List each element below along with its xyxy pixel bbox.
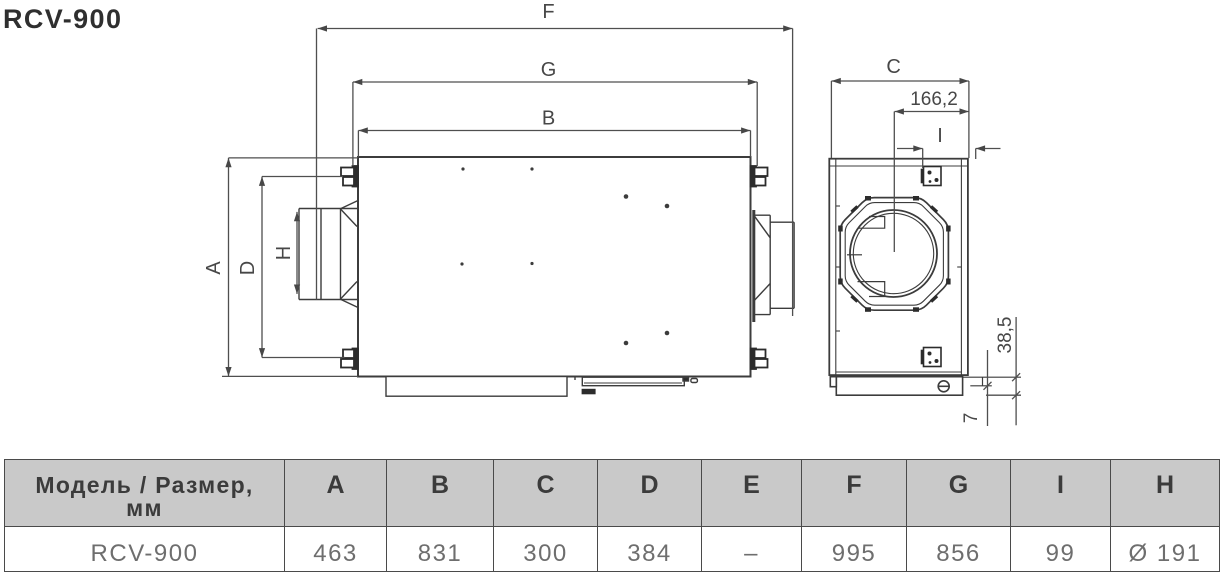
svg-text:A: A: [203, 261, 225, 275]
svg-text:H: H: [273, 246, 295, 260]
svg-text:166,2: 166,2: [910, 89, 958, 110]
svg-text:D: D: [237, 261, 259, 275]
svg-text:38,5: 38,5: [995, 317, 1016, 354]
svg-text:7: 7: [961, 413, 982, 424]
svg-text:I: I: [937, 125, 943, 147]
svg-text:G: G: [541, 59, 557, 81]
svg-text:C: C: [886, 56, 900, 78]
svg-text:B: B: [542, 108, 555, 130]
svg-text:F: F: [542, 1, 554, 23]
